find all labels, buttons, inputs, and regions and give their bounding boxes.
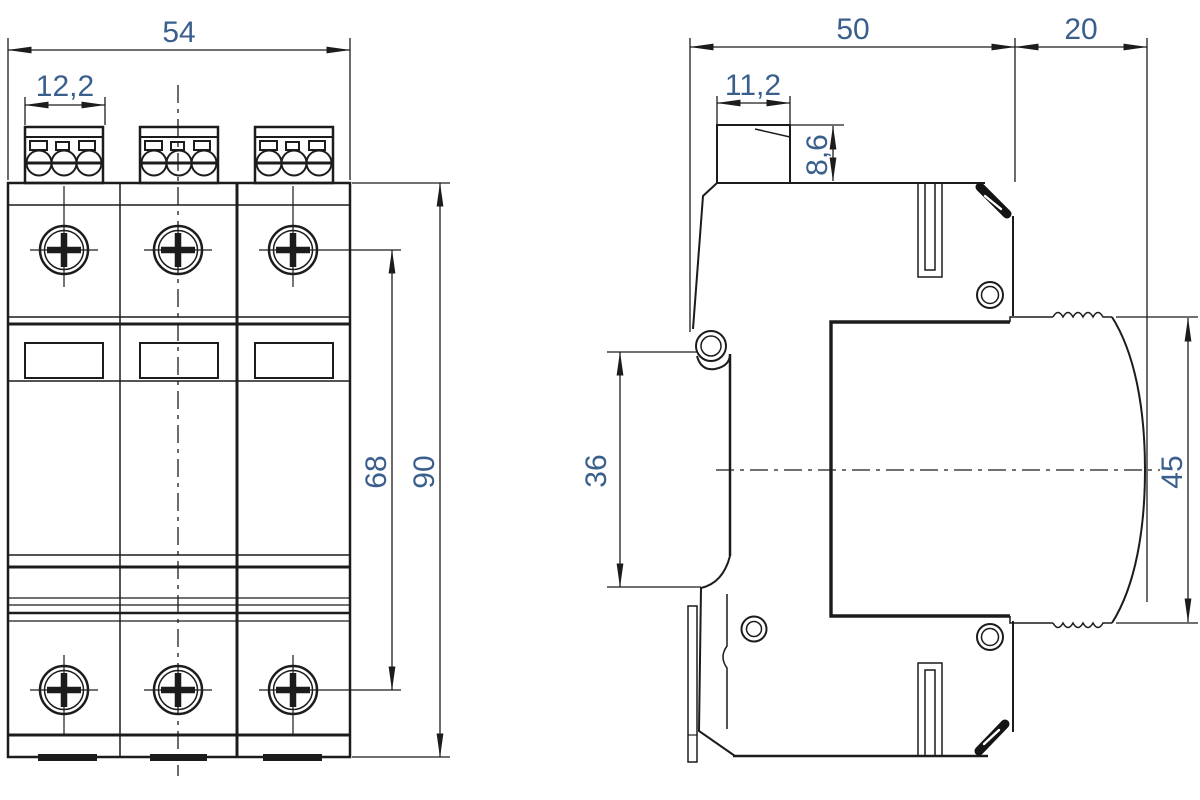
detail-circles bbox=[742, 282, 1004, 650]
dim-label-terminal-height: 8,6 bbox=[801, 134, 834, 176]
side-dimensions: 50 20 11,2 8,6 36 45 bbox=[580, 13, 1198, 623]
side-view: 50 20 11,2 8,6 36 45 bbox=[580, 13, 1198, 762]
dim-label-terminal-depth: 11,2 bbox=[725, 69, 781, 102]
dim-label-overall-width: 54 bbox=[162, 16, 195, 49]
retaining-clips bbox=[979, 187, 1007, 751]
foot-pad bbox=[38, 754, 97, 761]
din-release-catch bbox=[699, 556, 735, 756]
terminal-blocks bbox=[25, 127, 333, 183]
dimension-drawing-page: 54 12,2 68 90 bbox=[0, 0, 1200, 800]
front-view: 54 12,2 68 90 bbox=[8, 16, 450, 776]
clip-top bbox=[980, 187, 1007, 214]
din-release-slider bbox=[688, 606, 697, 762]
dim-label-front-module-height: 45 bbox=[1156, 455, 1189, 488]
dim-label-screw-span: 68 bbox=[360, 455, 393, 488]
dim-label-front-module-depth: 20 bbox=[1064, 13, 1097, 46]
indicator-windows bbox=[25, 343, 333, 378]
dim-label-base-depth: 50 bbox=[836, 13, 869, 46]
side-terminal-block bbox=[717, 125, 790, 183]
dim-label-terminal-width: 12,2 bbox=[36, 70, 94, 103]
dimension-drawing: 54 12,2 68 90 bbox=[0, 0, 1200, 800]
dim-label-overall-height: 90 bbox=[408, 455, 441, 488]
side-base-outline bbox=[688, 183, 1013, 762]
dim-label-back-recess-height: 36 bbox=[580, 454, 613, 487]
break-line-bottom bbox=[1053, 623, 1112, 628]
break-line-top bbox=[1053, 313, 1112, 318]
foot-pad bbox=[263, 754, 322, 761]
